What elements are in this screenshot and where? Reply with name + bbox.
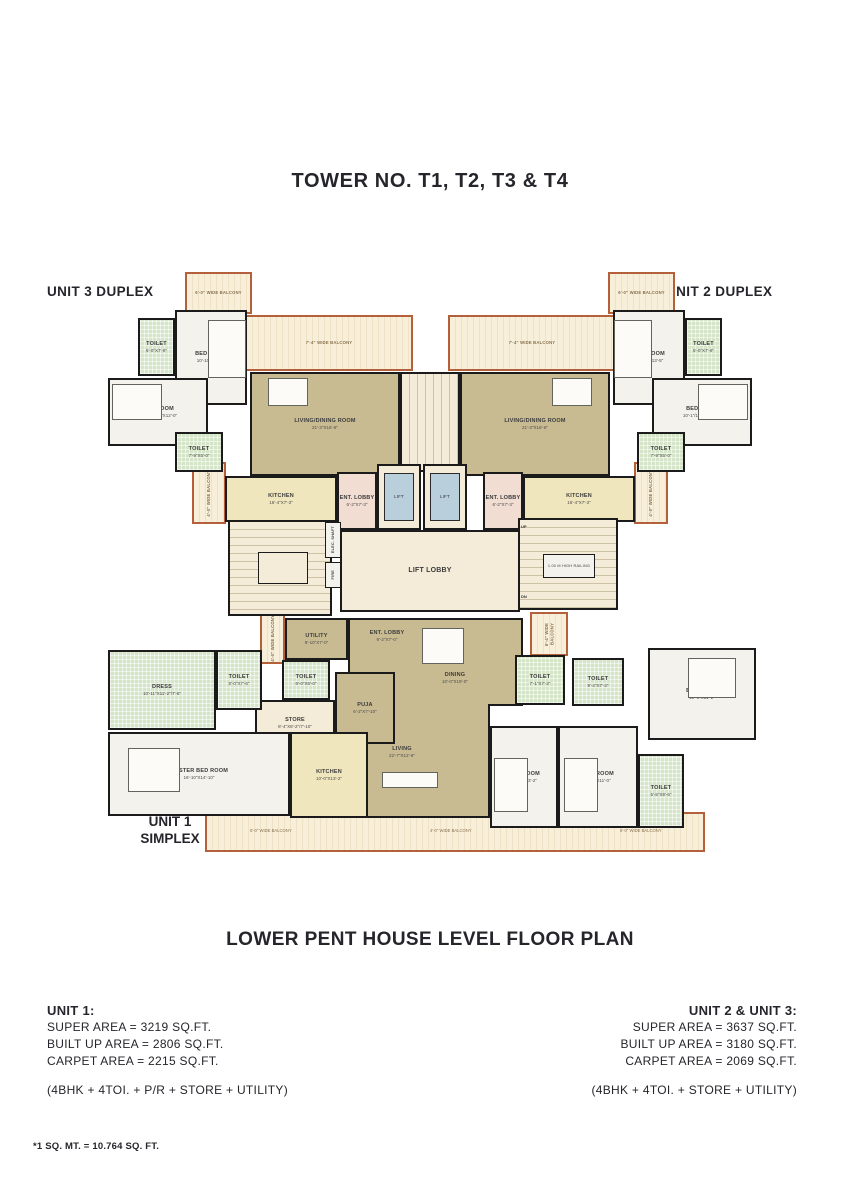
conversion-footnote: *1 SQ. MT. = 10.764 SQ. FT. (33, 1141, 159, 1152)
unit-1-carpet-area: CARPET AREA = 2215 SQ.FT. (47, 1053, 288, 1070)
room-toilet-2-right: TOILET 7'-9"X5'-0" (637, 432, 685, 472)
bed-icon (128, 748, 180, 792)
elec-shaft: ELEC. SHAFT (325, 522, 341, 558)
unit-23-built-up-area: BUILT UP AREA = 3180 SQ.FT. (591, 1036, 797, 1053)
room-utility: UTILITY 9'-10"X7'-0" (285, 618, 348, 660)
balcony-bottom-left-label: 6'-0" WIDE BALCONY (250, 828, 292, 833)
bed-icon (688, 658, 736, 698)
room-kitchen-right: KITCHEN 16'-4"X7'-3" (523, 476, 635, 522)
floor-plan-drawing: 6'-0" WIDE BALCONY 6'-0" WIDE BALCONY 7'… (100, 266, 760, 856)
unit-23-info-heading: UNIT 2 & UNIT 3: (591, 1002, 797, 1019)
dining-table-icon (422, 628, 464, 664)
unit-1-built-up-area: BUILT UP AREA = 2806 SQ.FT. (47, 1036, 288, 1053)
fire-shaft: FIRE (325, 562, 341, 588)
unit-1-config: (4BHK + 4TOI. + P/R + STORE + UTILITY) (47, 1082, 288, 1099)
dining-table-icon (552, 378, 592, 406)
staircase-left-landing (258, 552, 308, 584)
room-kitchen-left: KITCHEN 16'-4"X7'-3" (225, 476, 337, 522)
balcony-6-4: 6'-4" WIDE BALCONY (530, 612, 568, 656)
room-toilet-1-right: TOILET 5'-0"X7'-9" (685, 318, 722, 376)
bed-icon (698, 384, 748, 420)
unit-1-info: UNIT 1: SUPER AREA = 3219 SQ.FT. BUILT U… (47, 1002, 288, 1099)
bed-icon (614, 320, 652, 378)
room-dress: DRESS 10'-11"X11'-2"/7'-6" (108, 650, 216, 730)
railing-box: 1.00 M HIGH RAILING (543, 554, 595, 578)
bed-icon (564, 758, 598, 812)
lift-car-icon: LIFT (384, 473, 415, 521)
lift-car-icon: LIFT (430, 473, 461, 521)
stair-up-label: UP (521, 524, 527, 529)
room-toilet-master: TOILET 8'-0"X7'-6" (216, 650, 262, 710)
bed-icon (208, 320, 246, 378)
unit-23-super-area: SUPER AREA = 3637 SQ.FT. (591, 1019, 797, 1036)
unit-1-info-heading: UNIT 1: (47, 1002, 288, 1019)
room-toilet-d2: TOILET 9'-4"X7'-3" (572, 658, 624, 706)
stair-dn-label: DN (521, 594, 527, 599)
unit-23-carpet-area: CARPET AREA = 2069 SQ.FT. (591, 1053, 797, 1070)
page-title: TOWER NO. T1, T2, T3 & T4 (0, 170, 860, 193)
room-toilet-br: TOILET 5'-5"X9'-6" (638, 754, 684, 828)
balcony-bottom-center-label: 4'-0" WIDE BALCONY (430, 828, 472, 833)
floor-plan-page: TOWER NO. T1, T2, T3 & T4 UNIT 3 DUPLEX … (0, 0, 860, 1188)
room-dining-label: DINING 10'-0"X19'-0" (415, 666, 495, 690)
room-toilet-pr: TOILET 6'-0"X5'-0" (282, 660, 330, 700)
balcony-top-left: 6'-0" WIDE BALCONY (185, 272, 252, 314)
duplex-internal-stairs (400, 372, 460, 472)
unit-23-info: UNIT 2 & UNIT 3: SUPER AREA = 3637 SQ.FT… (591, 1002, 797, 1099)
room-ent-lobby-1-label: ENT. LOBBY 9'-2"X7'-0" (352, 624, 422, 648)
lift-2: LIFT (423, 464, 467, 530)
lift-1: LIFT (377, 464, 421, 530)
dining-table-icon (268, 378, 308, 406)
sofa-icon (382, 772, 438, 788)
balcony-top-right: 6'-0" WIDE BALCONY (608, 272, 675, 314)
room-toilet-1-left: TOILET 5'-0"X7'-9" (138, 318, 175, 376)
lift-lobby: LIFT LOBBY (340, 530, 520, 612)
bed-icon (494, 758, 528, 812)
balcony-7-4-right: 7'-4" WIDE BALCONY (448, 315, 616, 371)
room-toilet-d1: TOILET 7'-1"X7'-3" (515, 655, 565, 705)
room-toilet-2-left: TOILET 7'-9"X5'-0" (175, 432, 223, 472)
bed-icon (112, 384, 162, 420)
balcony-7-4-left: 7'-4" WIDE BALCONY (245, 315, 413, 371)
balcony-utility-side: 4'-0" WIDE BALCONY (260, 612, 285, 664)
room-ent-lobby-left: ENT. LOBBY 6'-2"X7'-3" (337, 472, 377, 530)
plan-title: LOWER PENT HOUSE LEVEL FLOOR PLAN (0, 929, 860, 951)
unit-23-config: (4BHK + 4TOI. + STORE + UTILITY) (591, 1082, 797, 1099)
room-ent-lobby-right: ENT. LOBBY 6'-2"X7'-3" (483, 472, 523, 530)
balcony-bottom-right-label: 6'-0" WIDE BALCONY (620, 828, 662, 833)
unit-1-super-area: SUPER AREA = 3219 SQ.FT. (47, 1019, 288, 1036)
room-kitchen-1: KITCHEN 10'-0"X13'-2" (290, 732, 368, 818)
